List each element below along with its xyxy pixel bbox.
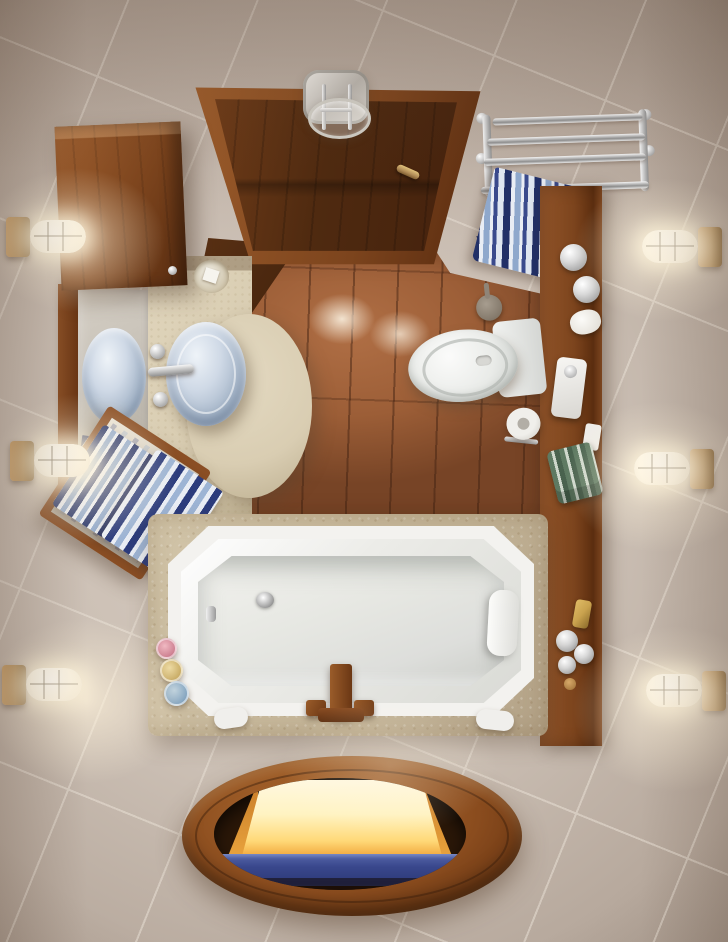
wall-cabinet	[54, 121, 187, 290]
sconce-base	[690, 449, 714, 489]
radiator-bar	[492, 113, 642, 125]
radiator-bar	[484, 153, 646, 166]
sconce-base	[6, 217, 30, 257]
tub-drain	[256, 592, 274, 608]
tub-grab-handle	[206, 606, 216, 622]
soap-bar	[568, 307, 604, 338]
cosmetic-bottle	[560, 244, 587, 271]
gold-bottle	[572, 599, 593, 629]
bath-bottle-pink	[156, 638, 177, 659]
ceiling-lamp-glass	[308, 98, 371, 139]
toilet-seat	[419, 334, 511, 401]
sconce-glass	[34, 444, 90, 477]
stairwell-glow	[242, 780, 442, 856]
bath-bottle-blue	[164, 681, 189, 706]
wall-sconce	[6, 214, 94, 260]
faucet-handle	[153, 392, 168, 407]
wall-sconce	[10, 438, 98, 484]
radiator-end	[638, 109, 649, 191]
sconce-base	[2, 665, 26, 705]
wall-sconce	[626, 446, 714, 492]
cabinet-knob	[168, 266, 177, 275]
sconce-base	[702, 671, 726, 711]
sconce-glass	[26, 668, 82, 701]
sconce-glass	[30, 220, 86, 253]
bathroom-top-view	[0, 0, 728, 942]
sconce-base	[698, 227, 722, 267]
radiator-bar	[487, 133, 645, 146]
sconce-base	[10, 441, 34, 481]
sink-rim-highlight	[176, 334, 236, 414]
chrome-jar	[574, 644, 594, 664]
sconce-glass	[646, 674, 702, 707]
stairwell-opening	[214, 778, 466, 890]
wooden-shelf	[540, 186, 602, 746]
stairwell-shadow	[214, 878, 466, 890]
toilet-brush	[475, 293, 504, 322]
toilet	[397, 289, 562, 459]
chrome-jar	[558, 656, 576, 674]
tub-faucet-base	[318, 708, 364, 722]
wall-sconce	[634, 224, 722, 270]
wall-sconce	[2, 662, 90, 708]
sconce-glass	[642, 230, 698, 263]
sconce-glass	[634, 452, 690, 485]
faucet-handle	[150, 344, 165, 359]
bath-bottle-yellow	[160, 659, 183, 682]
cosmetic-bottle	[573, 276, 600, 303]
soap-dish	[194, 260, 229, 293]
wall-sconce	[638, 668, 726, 714]
bath-pillow	[486, 589, 519, 656]
cork-jar	[564, 678, 576, 690]
